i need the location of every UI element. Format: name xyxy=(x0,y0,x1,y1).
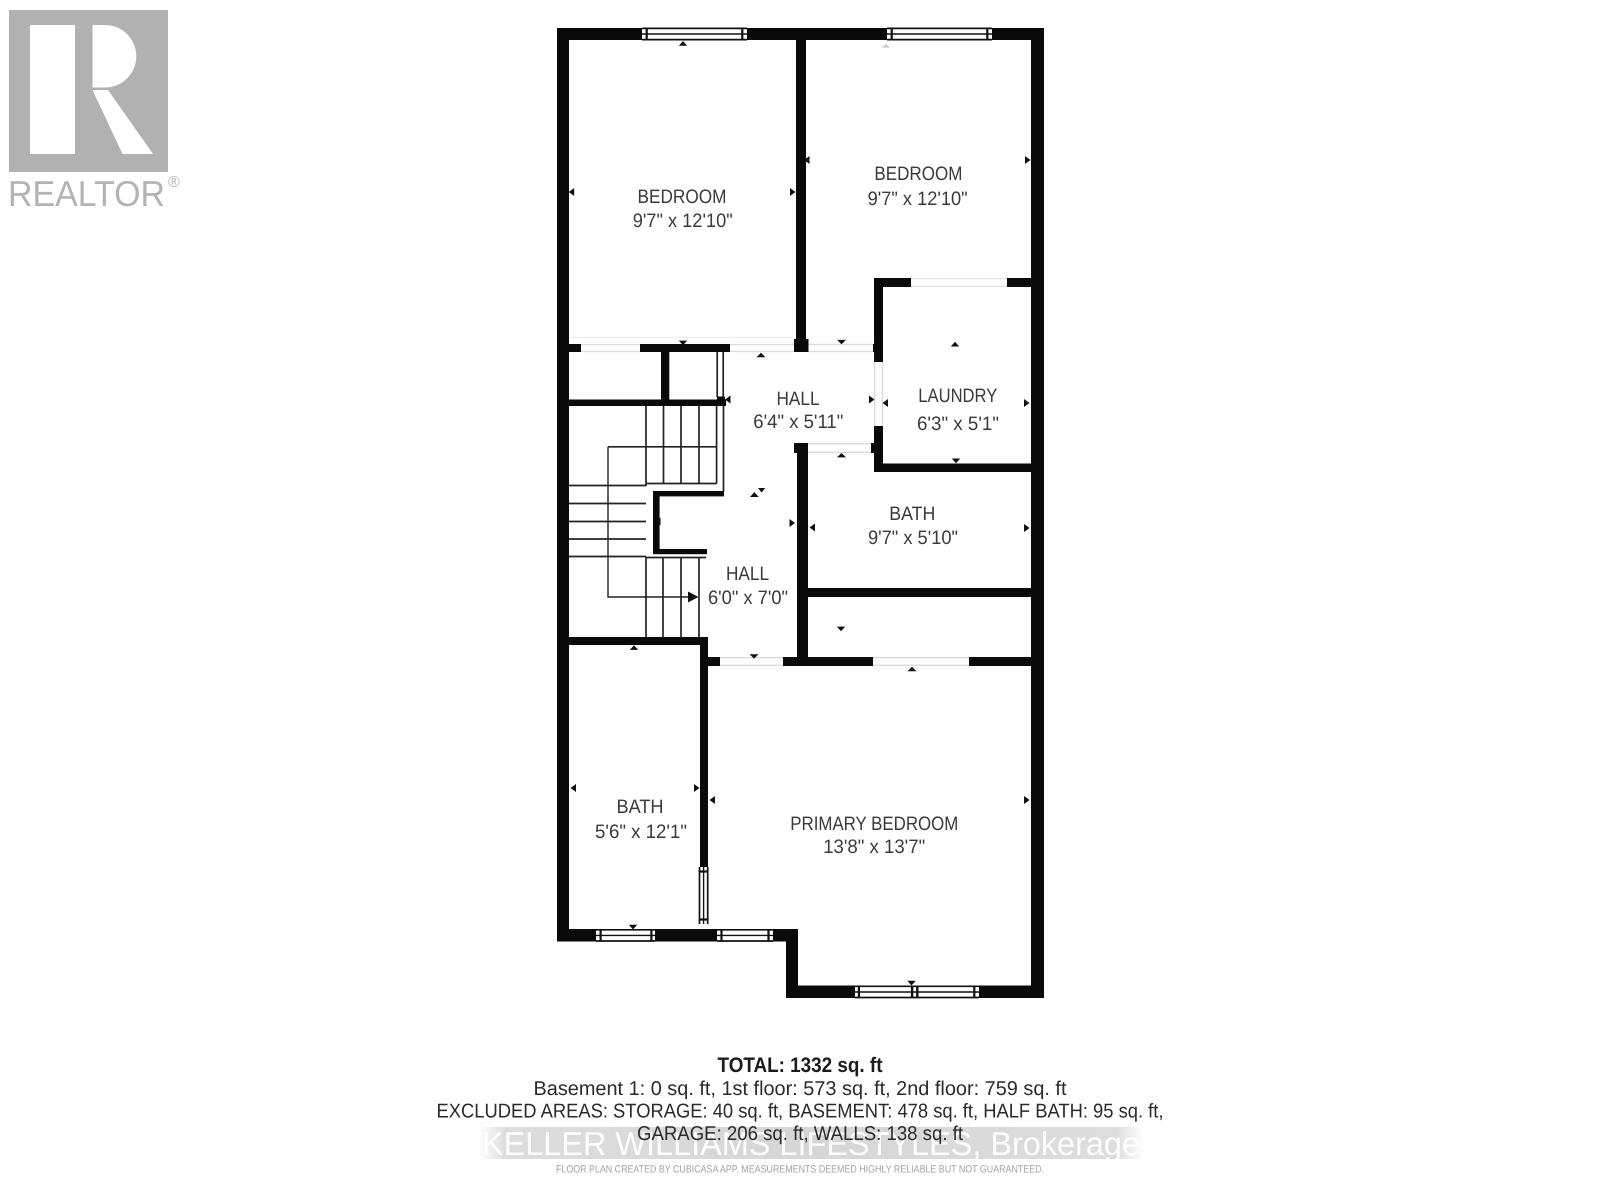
svg-text:6'3" x 5'1": 6'3" x 5'1" xyxy=(917,413,999,435)
svg-text:9'7" x 12'10": 9'7" x 12'10" xyxy=(868,188,968,210)
svg-text:5'6" x 12'1": 5'6" x 12'1" xyxy=(595,821,687,843)
svg-text:13'8" x 13'7": 13'8" x 13'7" xyxy=(823,836,925,858)
svg-text:Basement 1: 0 sq. ft, 1st floo: Basement 1: 0 sq. ft, 1st floor: 573 sq.… xyxy=(534,1078,1067,1100)
svg-text:BEDROOM: BEDROOM xyxy=(638,186,727,208)
svg-text:BEDROOM: BEDROOM xyxy=(874,163,962,185)
svg-text:6'4" x 5'11": 6'4" x 5'11" xyxy=(753,411,843,433)
svg-text:6'0" x 7'0": 6'0" x 7'0" xyxy=(708,587,788,609)
svg-text:BATH: BATH xyxy=(617,796,664,818)
svg-text:9'7" x 5'10": 9'7" x 5'10" xyxy=(868,527,958,549)
svg-text:FLOOR PLAN CREATED BY CUBICASA: FLOOR PLAN CREATED BY CUBICASA APP. MEAS… xyxy=(556,1164,1044,1176)
svg-text:TOTAL: 1332 sq. ft: TOTAL: 1332 sq. ft xyxy=(718,1054,883,1077)
svg-text:REALTOR: REALTOR xyxy=(8,173,165,214)
svg-text:HALL: HALL xyxy=(726,563,769,585)
svg-text:HALL: HALL xyxy=(777,388,820,410)
svg-text:9'7" x 12'10": 9'7" x 12'10" xyxy=(633,210,733,232)
svg-text:PRIMARY BEDROOM: PRIMARY BEDROOM xyxy=(790,813,958,835)
svg-text:GARAGE: 206 sq. ft, WALLS: 138: GARAGE: 206 sq. ft, WALLS: 138 sq. ft xyxy=(637,1123,963,1145)
svg-text:®: ® xyxy=(168,174,180,191)
svg-text:BATH: BATH xyxy=(889,503,935,525)
svg-text:LAUNDRY: LAUNDRY xyxy=(918,385,997,407)
svg-text:EXCLUDED AREAS: STORAGE: 40 sq: EXCLUDED AREAS: STORAGE: 40 sq. ft, BASE… xyxy=(437,1101,1164,1123)
